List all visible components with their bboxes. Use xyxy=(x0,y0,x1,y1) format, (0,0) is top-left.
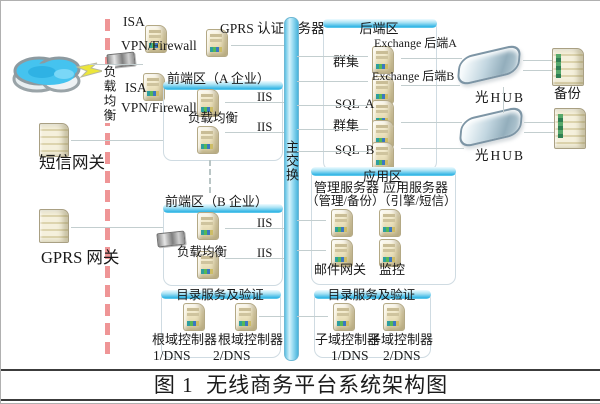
backup2-server-icon xyxy=(552,106,590,151)
connector-line xyxy=(523,70,552,71)
connector-line xyxy=(401,58,462,59)
backup-label: 备份 xyxy=(554,87,581,101)
connector-line xyxy=(297,151,368,152)
monitor-label: 监控 xyxy=(379,263,405,277)
connector-line xyxy=(297,56,368,57)
app-server-sub-label: （引擎/短信） xyxy=(378,195,456,208)
root-dc2-server-icon xyxy=(232,302,260,332)
bolt-icon xyxy=(77,63,103,77)
exchange-a-label: Exchange 后端A xyxy=(374,37,457,50)
app-server-label: 应用服务器 xyxy=(383,181,448,195)
connector-line xyxy=(297,105,368,106)
optical-hub1-icon xyxy=(457,43,522,87)
mgmt-server-icon xyxy=(328,208,356,238)
connector-line xyxy=(89,64,143,65)
directory-right-title: 目录服务及验证 xyxy=(314,284,429,303)
directory-left-title: 目录服务及验证 xyxy=(161,284,279,303)
backend-title: 后端区 xyxy=(323,18,435,37)
connector-line xyxy=(71,227,163,228)
cluster2-label: 群集 xyxy=(333,119,359,133)
zone-b-server1-icon xyxy=(194,211,222,241)
connector-line xyxy=(297,250,326,251)
optical-hub2-label: 光HUB xyxy=(475,149,525,163)
root-dc2-label: 根域控制器 xyxy=(218,333,283,347)
optical-hub1-label: 光HUB xyxy=(475,91,525,105)
exchange-b-label: Exchange 后端B xyxy=(372,70,454,83)
gprs-gateway-label: GPRS 网关 xyxy=(41,249,119,266)
sql-b-label: SQL B xyxy=(335,143,374,157)
optical-hub2-icon xyxy=(459,105,524,149)
zone-b-title: 前端区（B 企业） xyxy=(165,191,268,210)
connector-line xyxy=(225,102,284,103)
zone-a-lb-label: 负载均衡 xyxy=(188,112,238,125)
connector-line xyxy=(523,60,552,61)
root-dns1-label: 1/DNS xyxy=(153,349,191,363)
connector-line xyxy=(297,316,328,317)
sub-dc2-server-icon xyxy=(380,302,408,332)
connector-line xyxy=(297,81,368,82)
cluster1-label: 群集 xyxy=(333,55,359,69)
mgmt-server-sub-label: （管理/备份） xyxy=(306,195,384,208)
internet-cloud-icon xyxy=(9,47,105,97)
connector-line xyxy=(524,132,554,133)
backup1-server-icon xyxy=(550,46,588,88)
zone-b-lb-label: 负载均衡 xyxy=(177,246,227,259)
connector-line xyxy=(259,316,284,317)
connector-line xyxy=(225,228,284,229)
mail-gateway-label: 邮件网关 xyxy=(314,263,366,277)
main-switch-bar xyxy=(284,17,299,361)
root-dns2-label: 2/DNS xyxy=(213,349,251,363)
architecture-diagram: 负载均衡 ISA VPN/Firewall ISA VPN/Firewall 短… xyxy=(0,0,600,404)
connector-line xyxy=(503,87,504,113)
root-dc1-label: 根域控制器 xyxy=(152,333,217,347)
isa2-label: ISA xyxy=(125,81,147,95)
connector-line xyxy=(401,85,460,86)
figure-caption: 图 1 无线商务平台系统架构图 xyxy=(1,369,600,401)
load-balance-vertical-label: 负载均衡 xyxy=(102,65,115,123)
app-server-icon xyxy=(376,208,404,238)
sub-dns1-label: 1/DNS xyxy=(331,349,369,363)
zone-link-dashed xyxy=(209,160,211,193)
gprs-auth-label: GPRS 认证服务器 xyxy=(220,22,325,36)
gprs-gateway-server-icon xyxy=(37,207,73,245)
root-dc1-server-icon xyxy=(180,302,208,332)
zone-a-title: 前端区（A 企业） xyxy=(167,68,270,87)
connector-line xyxy=(225,258,284,259)
sub-dc2-label: 子域控制器 xyxy=(368,333,433,347)
sub-dns2-label: 2/DNS xyxy=(383,349,421,363)
connector-line xyxy=(401,122,462,123)
isa1-vpn-label: VPN/Firewall xyxy=(121,39,197,53)
sql-a-label: SQL A xyxy=(335,97,374,111)
main-switch-label: 主交换 xyxy=(285,140,298,182)
connector-line xyxy=(524,122,554,123)
connector-line xyxy=(231,45,284,46)
mgmt-server-label: 管理服务器 xyxy=(314,181,379,195)
sms-gateway-label: 短信网关 xyxy=(39,154,105,171)
sub-dc1-server-icon xyxy=(330,302,358,332)
connector-line xyxy=(225,132,284,133)
connector-line xyxy=(401,148,464,149)
figure-caption-text: 图 1 无线商务平台系统架构图 xyxy=(154,373,448,397)
connector-line xyxy=(71,140,163,141)
connector-line xyxy=(297,220,326,221)
connector-line xyxy=(297,129,368,130)
zone-a-server2-icon xyxy=(194,125,222,155)
